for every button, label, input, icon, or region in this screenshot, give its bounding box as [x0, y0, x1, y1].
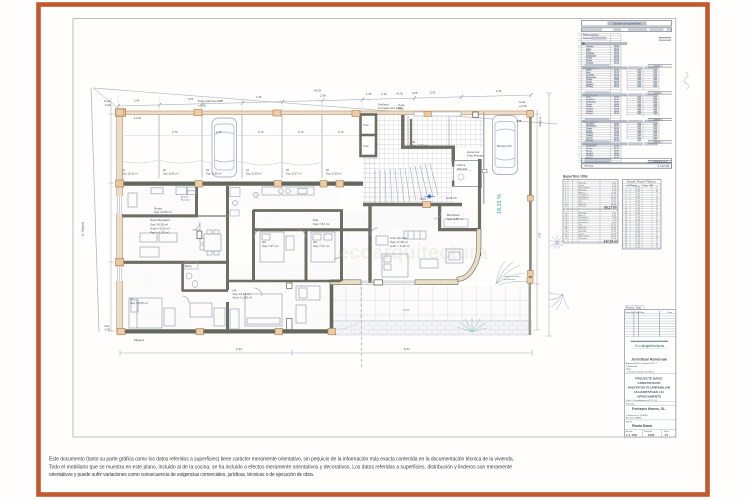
svg-text:Vivenda: Vivenda	[586, 140, 594, 142]
svg-text:2,60: 2,60	[637, 140, 641, 142]
svg-text:2,50: 2,50	[653, 86, 657, 88]
svg-text:Mitgera: Mitgera	[134, 338, 144, 342]
svg-text:14,46: 14,46	[134, 116, 141, 120]
svg-text:2,60: 2,60	[637, 86, 641, 88]
svg-text:Gelosia cambra: Gelosia cambra	[504, 275, 520, 278]
svg-text:32.19: 32.19	[614, 62, 620, 64]
svg-text:Jordi Bisar Romeroda: Jordi Bisar Romeroda	[631, 357, 667, 361]
svg-text:HABITATGE PLURIFAMILIAR: HABITATGE PLURIFAMILIAR	[628, 386, 671, 390]
svg-text:Quadre de superficies: Quadre de superficies	[613, 22, 641, 26]
svg-text:Todo el mobiliario que se mues: Todo el mobiliario que se muestra en est…	[49, 464, 512, 470]
svg-text:Promotor:: Promotor:	[626, 402, 636, 405]
svg-text:2,04: 2,04	[134, 98, 140, 102]
svg-text:Terrassa: Terrassa	[579, 206, 588, 208]
svg-text:Sup 12,22 m²: Sup 12,22 m²	[122, 172, 138, 176]
svg-text:Data: Data	[668, 311, 673, 314]
svg-text:66,17 m²: 66,17 m²	[604, 206, 617, 210]
svg-text:Sup 11,95 m²: Sup 11,95 m²	[206, 172, 222, 176]
svg-text:Amb = 1,80 m²: Amb = 1,80 m²	[233, 296, 253, 300]
svg-text:+0,30: +0,30	[519, 104, 527, 108]
svg-text:orientativos y puede sufrir va: orientativos y puede sufrir variaciones …	[49, 472, 314, 478]
svg-text:4,88: 4,88	[538, 232, 542, 238]
svg-text:2,70: 2,70	[172, 130, 178, 134]
svg-text:Arquitecte/Nro.Col·legiat 35.4: Arquitecte/Nro.Col·legiat 35.417-7	[626, 362, 658, 365]
svg-text:Fortrases Homes, SL.: Fortrases Homes, SL.	[632, 407, 666, 411]
svg-text:Sup 11,97 m²: Sup 11,97 m²	[412, 144, 428, 148]
svg-text:1,35: 1,35	[366, 92, 372, 96]
svg-text:5,01: 5,01	[404, 347, 410, 351]
svg-text:Pont Agricola-AMB: Pont Agricola-AMB	[198, 99, 223, 103]
svg-text:-0,20: -0,20	[104, 103, 111, 107]
svg-text:Cota ±0: Cota ±0	[446, 196, 457, 200]
svg-text:Este documento (tanto su parte: Este documento (tanto su parte gráfica c…	[49, 457, 514, 463]
svg-text:CONSTRUCCIÓ: CONSTRUCCIÓ	[637, 380, 661, 385]
svg-text:c/ de l. l Gerardajament nº 67: c/ de l. l Gerardajament nº 67 - 69	[626, 399, 658, 402]
svg-text:Sup 10,65 m²: Sup 10,65 m²	[130, 301, 148, 305]
svg-text:Cota: Cota	[104, 324, 110, 328]
svg-text:Sup. Útil: Sup. Útil	[643, 184, 653, 187]
svg-text:14,04: 14,04	[403, 308, 410, 312]
svg-text:Núm Rev Núm.Rev: Núm Rev Núm.Rev	[626, 312, 646, 314]
svg-text:Bany: Bany	[185, 264, 192, 268]
svg-text:44,35: 44,35	[314, 88, 321, 92]
svg-text:11: 11	[565, 206, 567, 208]
svg-text:Vestíbul: Vestíbul	[586, 61, 594, 64]
svg-text:Sup 6,85 m²: Sup 6,85 m²	[447, 217, 463, 221]
svg-text:Menjador: Menjador	[579, 238, 588, 240]
svg-text:Nº Plaza: Nº Plaza	[627, 183, 637, 187]
svg-text:142,56: 142,56	[654, 93, 661, 95]
svg-text:2,46: 2,46	[256, 95, 262, 99]
svg-text:100x120: 100x120	[457, 167, 468, 171]
svg-text:2,88: 2,88	[516, 119, 522, 123]
svg-text:Pàrking: Pàrking	[586, 86, 593, 88]
svg-text:2,70: 2,70	[298, 130, 304, 134]
svg-text:0,00: 0,00	[420, 197, 426, 201]
svg-text:2,60: 2,60	[637, 113, 641, 115]
svg-text:2.112,08: 2.112,08	[658, 164, 670, 168]
svg-text:Sup 7,61 m²: Sup 7,61 m²	[313, 222, 329, 226]
svg-text:Sup 11,95 m²: Sup 11,95 m²	[326, 172, 342, 176]
svg-text:2,50: 2,50	[653, 113, 657, 115]
svg-text:Mitgera: Mitgera	[538, 116, 542, 126]
svg-text:Taqat:: Taqat:	[626, 368, 632, 371]
svg-text:11,95: 11,95	[635, 246, 640, 248]
svg-text:9,65: 9,65	[412, 91, 418, 95]
svg-text:32.19: 32.19	[614, 140, 620, 142]
svg-text:Planta Baixa: Planta Baixa	[632, 424, 652, 428]
svg-text:- 04: - 04	[663, 433, 668, 437]
svg-text:2,70: 2,70	[216, 130, 222, 134]
svg-text:1,46: 1,46	[381, 92, 387, 96]
svg-text:+0,00: +0,00	[198, 104, 206, 108]
svg-text:Sup 10,96 m²: Sup 10,96 m²	[154, 210, 172, 214]
svg-text:C. Garett: C. Garett	[81, 222, 85, 236]
svg-text:27: 27	[625, 246, 627, 248]
svg-text:Quadre Places Pàrking: Quadre Places Pàrking	[627, 180, 656, 184]
svg-text:1,94: 1,94	[236, 347, 242, 351]
svg-text:Sup 11,95 m²: Sup 11,95 m²	[246, 172, 262, 176]
svg-text:ecoarquitectura: ecoarquitectura	[338, 242, 489, 264]
svg-text:Trast: Trast	[363, 145, 369, 148]
svg-text:32.19: 32.19	[614, 113, 620, 115]
svg-text:1023: 1023	[648, 433, 655, 437]
svg-text:Amb = 3,40 m²: Amb = 3,40 m²	[390, 244, 410, 248]
svg-text:18,15 %: 18,15 %	[497, 194, 503, 214]
svg-text:2,70: 2,70	[258, 130, 264, 134]
svg-text:-0,38: -0,38	[104, 327, 110, 331]
svg-text:142,56: 142,56	[654, 142, 661, 144]
svg-text:1:1, 1/50: 1:1, 1/50	[626, 433, 637, 437]
svg-text:Revisió / Data: Revisió / Data	[627, 307, 642, 310]
svg-text:Superficie Útils: Superficie Útils	[563, 174, 588, 179]
svg-text:PROJECTE BÀSIC: PROJECTE BÀSIC	[635, 376, 663, 381]
svg-text:Nº: Nº	[563, 176, 565, 179]
svg-text:23: 23	[565, 238, 567, 240]
svg-text:Rampa 4%: Rampa 4%	[497, 144, 512, 148]
svg-text:142,56: 142,56	[654, 66, 661, 68]
svg-text:Rampa: Rampa	[586, 113, 593, 115]
svg-text:Barcelona/SPAIN: Barcelona/SPAIN	[626, 417, 642, 420]
svg-text:Escobero: Escobero	[181, 198, 191, 201]
svg-text:5,01: 5,01	[430, 90, 436, 94]
svg-text:Pav = 4,52 m²: Pav = 4,52 m²	[150, 231, 169, 235]
svg-text:2,45: 2,45	[496, 89, 502, 93]
svg-text:Sup 7,97 m²: Sup 7,97 m²	[262, 244, 278, 248]
svg-text:APARCAMENTS: APARCAMENTS	[637, 395, 661, 399]
svg-text:Planta soterrani: Planta soterrani	[583, 34, 599, 37]
svg-text:142,56: 142,56	[654, 119, 661, 121]
svg-text:Sup 7,01 m²: Sup 7,01 m²	[313, 244, 329, 248]
svg-text:+0,01: +0,01	[396, 91, 404, 95]
svg-text:Auto-Rampa: Auto-Rampa	[467, 154, 484, 158]
svg-text:Sup 11,95 m²: Sup 11,95 m²	[163, 172, 179, 176]
svg-text:147,06 m²: 147,06 m²	[603, 240, 618, 244]
svg-text:instolacions: instolacions	[504, 278, 516, 281]
svg-text:32.19: 32.19	[614, 86, 620, 88]
svg-text:EcoArquitectura: EcoArquitectura	[635, 344, 665, 348]
svg-text:Armario: Armario	[181, 196, 189, 199]
svg-text:5,01: 5,01	[188, 97, 194, 101]
svg-text:Gran Menjador: Gran Menjador	[150, 218, 170, 222]
svg-text:2,50: 2,50	[653, 140, 657, 142]
svg-text:2,70: 2,70	[338, 130, 344, 134]
svg-text:Trast: Trast	[363, 124, 369, 127]
svg-text:TOTAL: TOTAL	[584, 164, 594, 168]
svg-text:16 HABITATGES I 21: 16 HABITATGES I 21	[634, 390, 664, 394]
svg-text:0,00: 0,00	[398, 107, 404, 111]
svg-text:2,98: 2,98	[320, 93, 326, 97]
svg-text:Colaborador:: Colaborador:	[626, 365, 638, 368]
svg-text:Sup 11,97 m²: Sup 11,97 m²	[286, 172, 302, 176]
svg-text:261,32: 261,32	[661, 161, 668, 163]
svg-text:c/ Gerards Garriguet 30 08017: c/ Gerards Garriguet 30 08017	[626, 371, 655, 374]
